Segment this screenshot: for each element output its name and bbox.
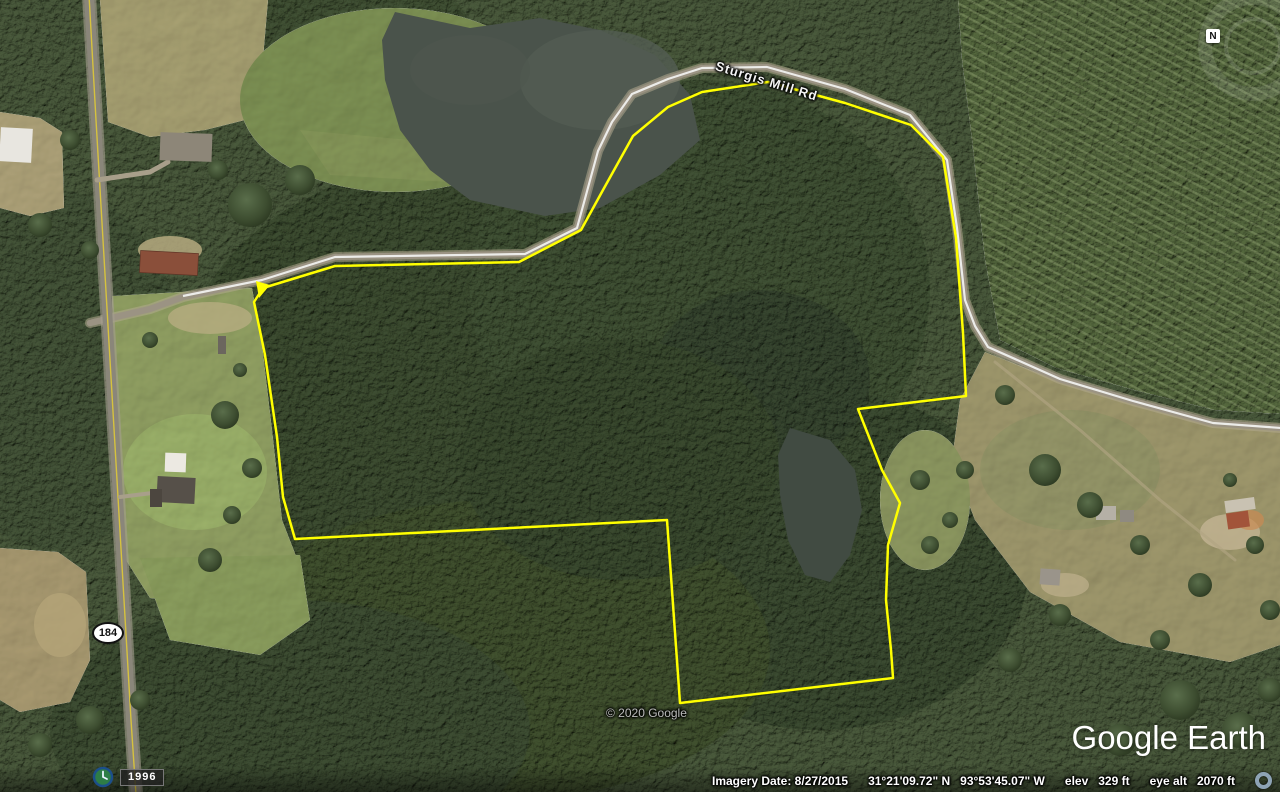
eye-alt-value: 2070 ft — [1197, 774, 1235, 788]
compass-north-label[interactable]: N — [1206, 29, 1220, 43]
eye-alt-label: eye alt — [1150, 774, 1187, 788]
streaming-indicator-icon — [1255, 772, 1272, 789]
google-earth-logo: Google Earth — [1072, 719, 1266, 757]
google-earth-viewport[interactable]: Sturgis Mill Rd 184 N © 2020 Google Goog… — [0, 0, 1280, 792]
historical-imagery-badge[interactable]: 1996 — [92, 766, 164, 788]
status-bar: Imagery Date: 8/27/2015 31°21'09.72" N 9… — [712, 772, 1272, 789]
historical-year[interactable]: 1996 — [120, 769, 164, 786]
elev-label: elev — [1065, 774, 1088, 788]
imagery-date: Imagery Date: 8/27/2015 — [712, 774, 848, 788]
highway-184-shield: 184 — [92, 622, 124, 644]
red-barn — [139, 250, 198, 275]
longitude: 93°53'45.07" W — [960, 774, 1045, 788]
clock-icon[interactable] — [92, 766, 114, 788]
satellite-map[interactable] — [0, 0, 1280, 792]
copyright-watermark: © 2020 Google — [606, 706, 687, 720]
elev-value: 329 ft — [1098, 774, 1129, 788]
latitude: 31°21'09.72" N — [868, 774, 950, 788]
